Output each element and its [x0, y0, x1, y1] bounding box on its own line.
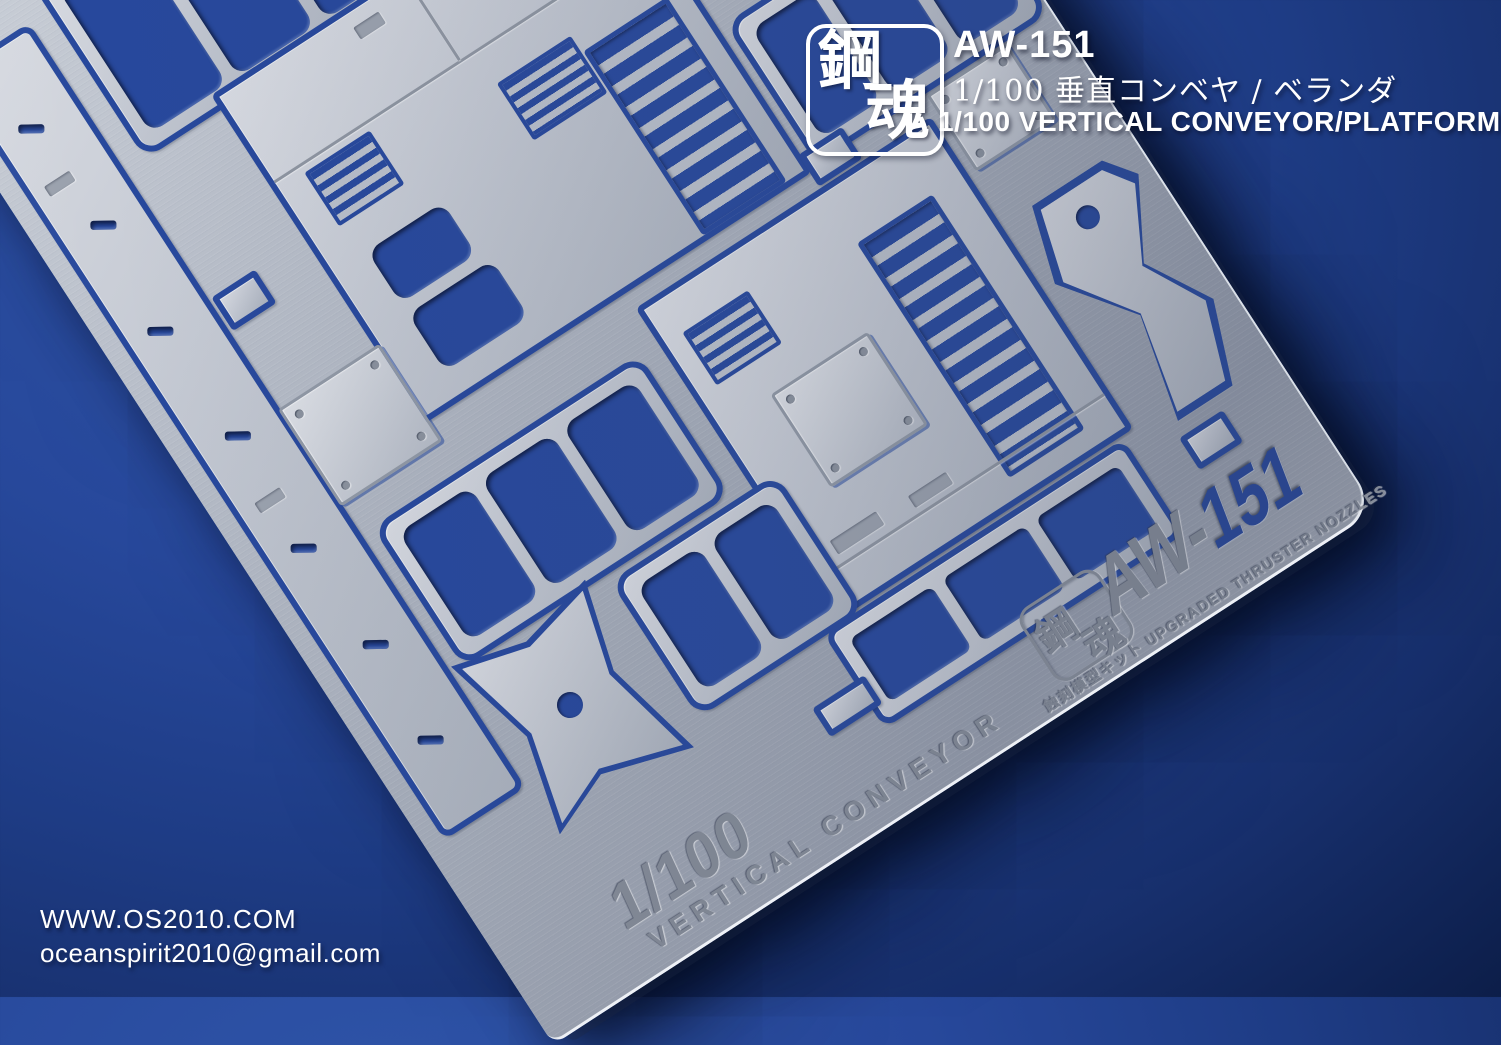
rivet-dot — [339, 479, 351, 491]
photoetch-sheet: 1/100 VERTICAL CONVEYOR 鋼 魂 AW-151 蝕刻模型キ… — [0, 0, 1377, 1045]
rivet-dot — [829, 462, 841, 474]
etched-notch — [830, 511, 885, 554]
brand-logo-badge: 鋼 魂 — [806, 24, 944, 156]
rivet-dot — [902, 414, 914, 426]
hatch-plate-part — [770, 332, 928, 488]
slot-cutout — [147, 327, 173, 336]
slot-cutout — [90, 220, 116, 229]
website-text: WWW.OS2010.COM — [40, 904, 297, 935]
etched-notch — [353, 11, 386, 39]
rivet-dot — [293, 408, 305, 420]
slot-cutout — [363, 640, 389, 649]
rivet-dot — [415, 430, 427, 442]
panel-line — [404, 0, 461, 61]
slot-cutout — [291, 544, 317, 553]
vent-slots — [304, 130, 404, 226]
etched-notch — [254, 487, 286, 513]
rivet-dot — [857, 345, 869, 357]
vent-slots — [682, 290, 782, 385]
product-code-title: AW-151 — [953, 24, 1096, 67]
etched-notch — [44, 171, 76, 197]
slot-cutout — [18, 124, 44, 133]
product-title-english: 1/100 VERTICAL CONVEYOR/PLATFORM — [938, 106, 1501, 138]
slot-cutout — [418, 735, 444, 744]
etched-notch — [908, 472, 953, 508]
rivet-dot — [369, 359, 381, 371]
product-photo: { "overlay": { "logo": { "char1": "鋼", "… — [0, 0, 1501, 997]
brand-logo-char: 魂 — [866, 80, 930, 144]
rivet-dot — [784, 393, 796, 405]
email-text: oceanspirit2010@gmail.com — [40, 938, 381, 969]
product-title-japanese: 1/100 垂直コンベヤ / ベランダ — [953, 66, 1397, 110]
slot-cutout — [225, 431, 251, 440]
rivet-dot — [974, 147, 986, 159]
